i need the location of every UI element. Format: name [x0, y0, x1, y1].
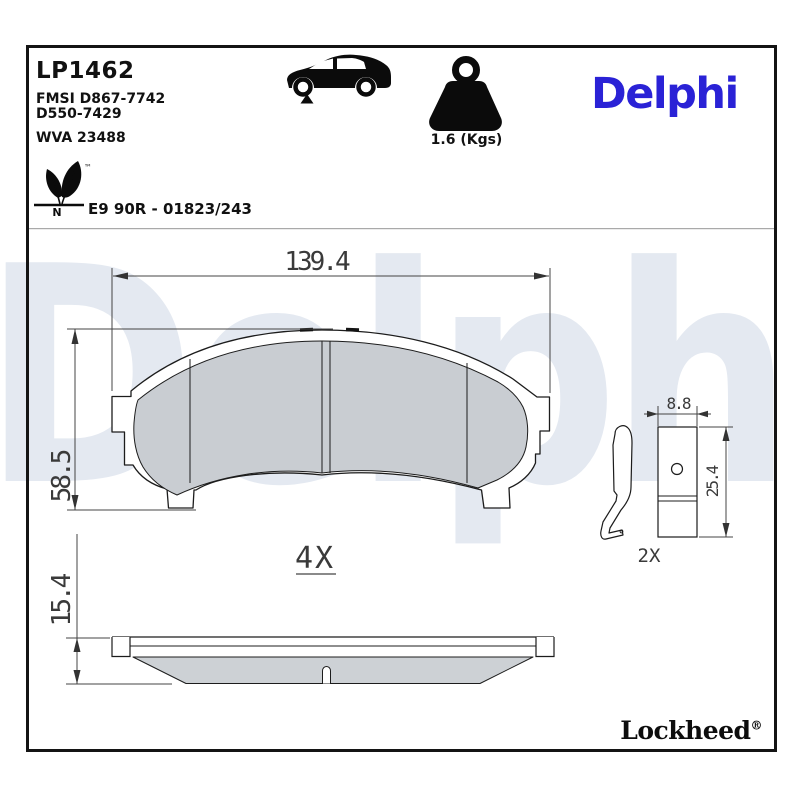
car-wheel-rear	[359, 80, 374, 95]
weight-value-label: 1.6 (Kgs)	[424, 132, 509, 148]
clip-side-profile	[601, 426, 632, 539]
accessory-width-value: 8.8	[667, 394, 691, 413]
accessory-quantity-value: 2X	[638, 545, 661, 567]
arrowhead-bottom	[723, 523, 730, 537]
clip-front-view	[658, 427, 697, 537]
weight-handle	[456, 60, 477, 81]
eco-n-letter: N	[52, 206, 61, 219]
lockheed-wordmark: Lockheed	[620, 716, 750, 745]
pad-height-value: 58.5	[47, 450, 77, 502]
pad-quantity-value: 4X	[295, 541, 335, 576]
trademark-symbol: ™	[84, 163, 92, 172]
arrowhead-top	[72, 329, 79, 344]
homologation-number: E9 90R - 01823/243	[88, 200, 252, 218]
accessory-height-value: 25.4	[703, 465, 722, 497]
car-window-front	[309, 59, 333, 70]
arrowhead-right	[697, 411, 708, 417]
fmsi-numbers: FMSI D867-7742 D550-7429	[36, 92, 165, 122]
friction-material-side	[133, 657, 533, 684]
delphi-logo: Delphi	[591, 73, 738, 116]
lockheed-logo: Lockheed®	[620, 716, 762, 745]
top-tab-left	[300, 330, 313, 331]
center-slot-notch	[323, 667, 331, 684]
arrowhead-left	[647, 411, 658, 417]
arrowhead-right	[534, 273, 549, 280]
arrowhead-top	[723, 427, 730, 441]
weight-icon	[420, 52, 512, 136]
weight-body	[429, 81, 502, 131]
arrowhead-bottom	[74, 670, 81, 684]
end-cap-left	[112, 637, 130, 657]
car-wheel-front	[296, 80, 311, 95]
fmsi-line-2: D550-7429	[36, 107, 165, 122]
end-cap-right	[536, 637, 554, 657]
page-title-part-number: LP1462	[36, 58, 135, 84]
fmsi-line-1: FMSI D867-7742	[36, 92, 165, 107]
pad-thickness-value: 15.4	[47, 573, 77, 626]
registered-symbol: ®	[751, 719, 763, 733]
car-icon	[283, 50, 398, 108]
pad-width-value: 139.4	[284, 247, 350, 277]
eco-leaf-icon: N ™	[28, 158, 93, 220]
pad-front-view	[112, 330, 550, 509]
spec-sheet-page: Delphi LP1462 FMSI D867-7742 D550-7429 W…	[0, 0, 800, 800]
top-tab-right	[346, 330, 359, 331]
pad-side-view	[112, 637, 554, 684]
dimension-accessory-width: 8.8	[644, 394, 711, 426]
pad-quantity-label: 4X	[295, 541, 336, 576]
clip-hole	[672, 464, 683, 475]
accessory-clip	[601, 426, 697, 539]
wva-number: WVA 23488	[36, 130, 126, 146]
arrowhead-left	[113, 273, 128, 280]
arrowhead-top	[74, 638, 81, 652]
dimension-accessory-height: 25.4	[699, 427, 733, 537]
